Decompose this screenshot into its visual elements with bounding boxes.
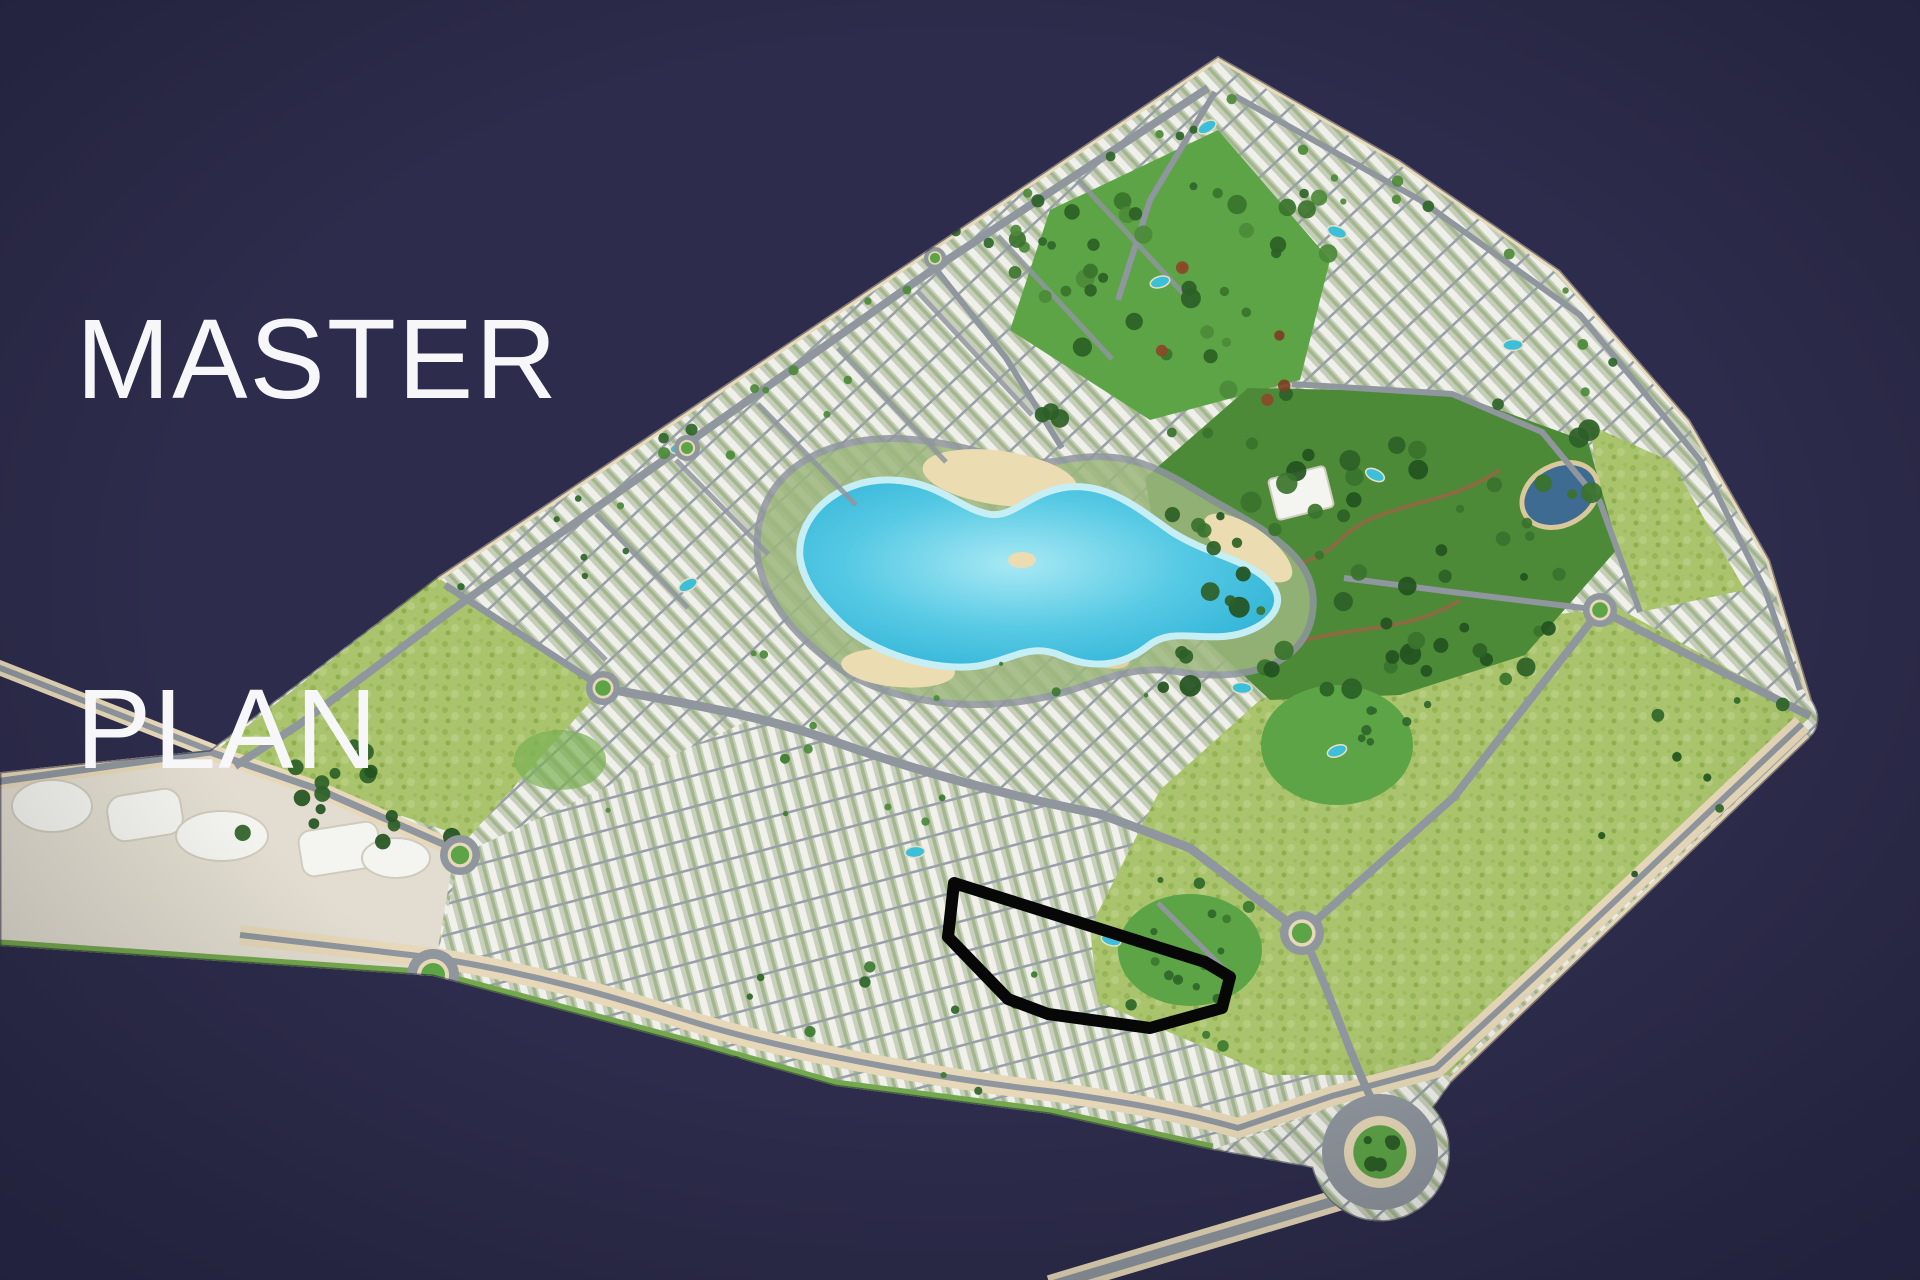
- page-title: MASTER PLAN: [76, 52, 559, 914]
- tree: [582, 573, 588, 579]
- tree: [780, 754, 790, 764]
- tree: [1373, 1158, 1387, 1172]
- tree: [921, 817, 929, 825]
- tree: [1473, 643, 1488, 658]
- tree: [1504, 249, 1515, 260]
- tree: [1191, 518, 1206, 533]
- roundabout-island: [595, 680, 611, 696]
- tree: [1035, 407, 1050, 422]
- tree: [1227, 195, 1246, 214]
- tree: [1031, 194, 1044, 207]
- tree: [1239, 223, 1254, 238]
- tree: [1129, 207, 1142, 220]
- tree: [1158, 682, 1169, 693]
- tree: [1047, 241, 1056, 250]
- tree: [1039, 290, 1052, 303]
- tree: [1734, 697, 1741, 704]
- tree: [934, 695, 940, 701]
- tree: [804, 744, 813, 753]
- tree: [1459, 623, 1469, 633]
- tree: [823, 411, 830, 418]
- tree: [1367, 738, 1375, 746]
- tree: [1232, 538, 1242, 548]
- tree: [1567, 489, 1577, 499]
- tree: [1155, 130, 1163, 138]
- tree: [1222, 338, 1231, 347]
- tree: [951, 1005, 960, 1014]
- tree: [1776, 698, 1790, 712]
- tree: [1061, 286, 1072, 297]
- tree: [1180, 675, 1202, 697]
- tree: [1227, 94, 1237, 104]
- tree: [1380, 618, 1392, 630]
- tree: [1562, 287, 1568, 293]
- tree: [686, 424, 698, 436]
- tree: [1424, 701, 1431, 708]
- tree: [1241, 492, 1262, 513]
- roundabout-island: [930, 253, 940, 263]
- tree: [1308, 504, 1323, 519]
- tree: [1298, 200, 1316, 218]
- tree: [1351, 564, 1367, 580]
- tree: [1581, 387, 1590, 396]
- tree: [1598, 832, 1605, 839]
- tree: [1499, 673, 1512, 686]
- tree: [984, 238, 994, 248]
- tree: [1492, 398, 1504, 410]
- tree: [1217, 948, 1224, 955]
- tree: [859, 976, 870, 987]
- tree: [1268, 523, 1281, 536]
- tree: [1202, 428, 1213, 439]
- tree: [1271, 248, 1281, 258]
- tree: [1167, 428, 1177, 438]
- tree: [1164, 970, 1174, 980]
- tree: [1207, 541, 1221, 555]
- tree: [1246, 438, 1258, 450]
- tree: [1052, 687, 1061, 696]
- tree: [1243, 901, 1255, 913]
- tree: [864, 297, 871, 304]
- tree: [1522, 518, 1533, 529]
- roundabout-island: [1592, 602, 1608, 618]
- tree: [1631, 871, 1638, 878]
- tree: [762, 387, 769, 394]
- tree: [1302, 449, 1314, 461]
- roundabout-island: [681, 442, 693, 454]
- tree: [1525, 531, 1535, 541]
- tree: [1386, 650, 1400, 664]
- tree: [1340, 198, 1346, 204]
- tree: [999, 662, 1003, 666]
- tree: [1541, 621, 1556, 636]
- tree: [1392, 195, 1401, 204]
- tree: [1408, 441, 1426, 459]
- tree: [1202, 1031, 1210, 1039]
- tree: [1487, 477, 1502, 492]
- master-plan-page: MASTER PLAN: [0, 0, 1920, 1280]
- pool: [1503, 339, 1523, 351]
- tree: [658, 433, 669, 444]
- tree: [1315, 551, 1324, 560]
- tree: [1402, 717, 1411, 726]
- lagoon-island: [1008, 552, 1036, 568]
- tree: [809, 722, 817, 730]
- garden-southeast: [1118, 894, 1262, 1006]
- tree: [1715, 804, 1724, 813]
- tree: [1225, 595, 1236, 606]
- tree: [864, 961, 875, 972]
- tree: [1433, 638, 1448, 653]
- tree: [1216, 512, 1224, 520]
- tree: [726, 450, 735, 459]
- tree: [1144, 693, 1149, 698]
- tree: [1064, 204, 1080, 220]
- tree: [1173, 975, 1183, 985]
- tree: [1190, 182, 1198, 190]
- tree: [623, 548, 630, 555]
- tree: [1298, 145, 1308, 155]
- tree: [1496, 531, 1511, 546]
- tree: [1010, 225, 1021, 236]
- tree: [1398, 577, 1417, 596]
- tree: [1577, 339, 1588, 350]
- tree: [1520, 573, 1528, 581]
- tree: [606, 808, 611, 813]
- tree: [1023, 189, 1032, 198]
- tree: [783, 811, 788, 816]
- tree: [1220, 287, 1229, 296]
- tree: [747, 993, 753, 999]
- tree: [1578, 419, 1600, 441]
- tree: [1334, 592, 1353, 611]
- tree: [1242, 308, 1252, 318]
- tree: [1204, 349, 1218, 363]
- title-line-1: MASTER: [76, 298, 559, 421]
- tree: [1392, 175, 1403, 186]
- tree: [941, 1072, 947, 1078]
- tree: [1200, 325, 1214, 339]
- tree: [1106, 152, 1116, 162]
- tree: [1703, 774, 1711, 782]
- tree: [575, 495, 582, 502]
- roundabout: [674, 435, 700, 461]
- tree: [1179, 649, 1193, 663]
- tree: [1201, 582, 1220, 601]
- tree: [580, 554, 587, 561]
- tree: [1256, 606, 1265, 615]
- tree: [1421, 665, 1433, 677]
- tree: [1581, 482, 1602, 503]
- tree: [1319, 244, 1338, 263]
- tree: [1193, 983, 1200, 990]
- tree: [1236, 567, 1251, 582]
- tree: [1213, 188, 1223, 198]
- tree: [1340, 450, 1361, 471]
- roundabout-island: [1292, 923, 1312, 943]
- tree: [1331, 174, 1338, 181]
- tree: [1371, 708, 1377, 714]
- pool: [1232, 682, 1253, 694]
- tree: [1073, 338, 1092, 357]
- tree: [1552, 568, 1565, 581]
- tree: [1084, 284, 1096, 296]
- tree: [1151, 957, 1160, 966]
- tree: [1456, 505, 1464, 513]
- tree: [750, 384, 759, 393]
- tree: [1156, 345, 1168, 357]
- tree: [903, 286, 912, 295]
- tree: [1009, 266, 1022, 279]
- title-line-2: PLAN: [76, 668, 559, 791]
- tree: [1337, 509, 1350, 522]
- tree: [1051, 409, 1069, 427]
- roundabout: [586, 671, 620, 705]
- tree: [1157, 877, 1163, 883]
- tree: [1439, 570, 1452, 583]
- roundabout: [1280, 911, 1324, 955]
- tree: [658, 447, 670, 459]
- tree: [1386, 1135, 1401, 1150]
- tree: [1361, 725, 1371, 735]
- tree: [1264, 661, 1280, 677]
- tree: [757, 974, 765, 982]
- tree: [1320, 682, 1335, 697]
- tree: [1181, 288, 1201, 308]
- tree: [1274, 330, 1284, 340]
- tree: [1423, 201, 1435, 213]
- roundabout: [1322, 1094, 1438, 1210]
- tree: [788, 365, 798, 375]
- tree: [1165, 507, 1180, 522]
- tree: [1276, 473, 1297, 494]
- tree: [1274, 641, 1293, 660]
- tree: [1652, 709, 1665, 722]
- tree: [1388, 437, 1405, 454]
- tree: [1408, 632, 1426, 650]
- tree: [1261, 394, 1273, 406]
- tree: [1217, 1040, 1229, 1052]
- tree: [1299, 189, 1309, 199]
- tree: [1087, 239, 1099, 251]
- tree: [804, 1026, 815, 1037]
- tree: [1031, 971, 1038, 978]
- tree: [1346, 492, 1361, 507]
- tree: [751, 650, 757, 656]
- tree: [1219, 381, 1237, 399]
- tree: [1194, 878, 1205, 889]
- tree: [1125, 999, 1136, 1010]
- tree: [1279, 199, 1296, 216]
- tree: [1358, 734, 1366, 742]
- tree: [1534, 474, 1552, 492]
- tree: [939, 794, 946, 801]
- tree: [1176, 261, 1189, 274]
- tree: [974, 1087, 982, 1095]
- tree: [1150, 928, 1157, 935]
- tree: [1517, 658, 1536, 677]
- tree: [844, 376, 852, 384]
- tree: [1176, 132, 1185, 141]
- tree: [1408, 460, 1428, 480]
- tree: [1038, 237, 1047, 246]
- tree: [1278, 380, 1290, 392]
- roundabout: [1583, 593, 1617, 627]
- tree: [617, 502, 624, 509]
- tree: [1126, 313, 1143, 330]
- tree: [1436, 544, 1448, 556]
- tree: [884, 804, 891, 811]
- tree: [1190, 126, 1198, 134]
- tree: [1222, 915, 1231, 924]
- tree: [1608, 358, 1617, 367]
- tree: [1364, 1136, 1372, 1144]
- tree: [760, 650, 769, 659]
- tree: [1208, 909, 1217, 918]
- tree: [1672, 752, 1682, 762]
- tree: [1343, 686, 1355, 698]
- tree: [1134, 226, 1152, 244]
- tree: [1098, 273, 1108, 283]
- tree: [1083, 264, 1098, 279]
